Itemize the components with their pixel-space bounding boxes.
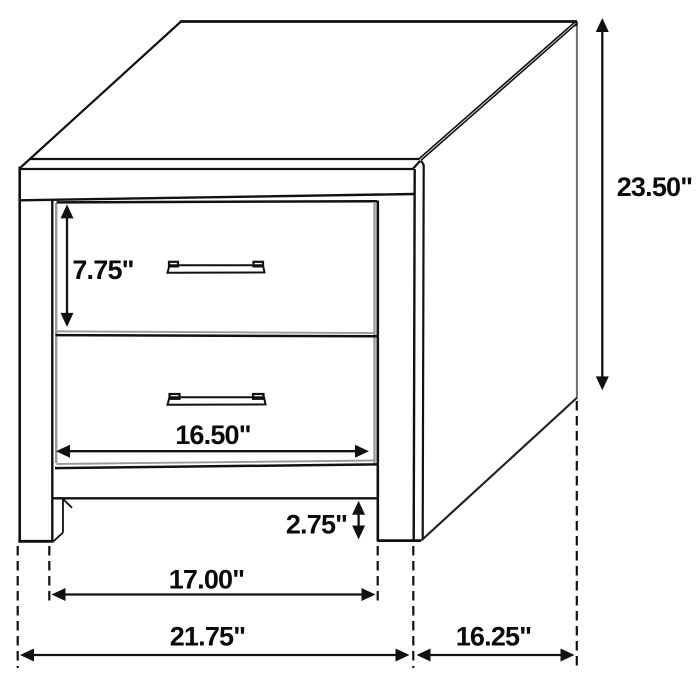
svg-text:16.50": 16.50" [175,420,251,450]
svg-text:21.75": 21.75" [170,622,246,652]
svg-text:23.50": 23.50" [617,172,693,202]
svg-text:16.25": 16.25" [456,622,532,652]
svg-text:17.00": 17.00" [169,565,245,595]
svg-text:2.75": 2.75" [286,510,347,540]
svg-text:7.75": 7.75" [72,255,133,285]
